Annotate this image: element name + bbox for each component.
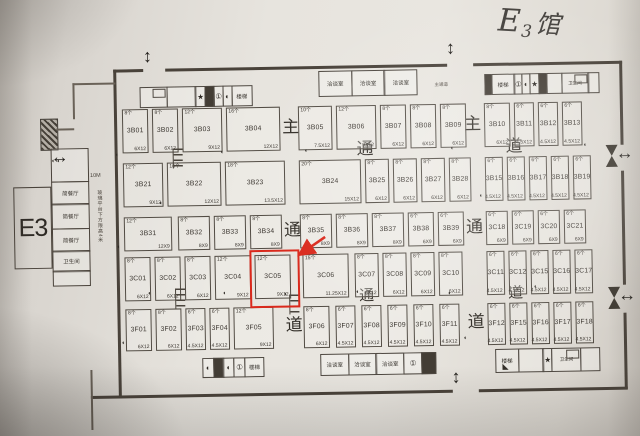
booth-unit-count: 6个	[512, 304, 520, 310]
booth-3b13: 6个 3B13 4.5X12	[562, 101, 583, 145]
booth-3c12: 6个 3C12 4.5X12	[508, 250, 527, 294]
booth-unit-count: 6个	[566, 211, 574, 217]
booth-id: 3C18	[488, 224, 505, 231]
booth-3b08: 8个 3B08 6X12	[410, 104, 437, 148]
room	[139, 87, 167, 108]
dark-room	[421, 352, 436, 374]
booth-unit-count: 6个	[564, 103, 572, 109]
meeting-room: 洽谈室	[320, 354, 349, 377]
handwritten-char: E	[497, 2, 521, 39]
floor-plan: ◐ ◐简餐厅简餐厅简餐厅卫生间 E3 10M 玻璃平台下方限高4米 ↕ ↕ ↔ …	[0, 0, 640, 436]
booth-unit-count: 8个	[306, 307, 314, 313]
booth-id: 3B24	[322, 178, 339, 185]
booth-3b24: 20个 3B24 15X12	[299, 159, 362, 204]
booth-id: 3B09	[445, 122, 462, 129]
pillar-icon: ◐	[451, 146, 455, 152]
booth-3b02: 8个 3B02 6X12	[152, 108, 179, 152]
booth-size: 4.5X12	[576, 336, 592, 342]
pillar-icon: ◐	[448, 291, 452, 297]
booth-3f08: 6个 3F08 4.5X12	[361, 305, 382, 347]
booth-3b31: 12个 3B31 12X9	[124, 217, 173, 252]
booth-size: 12X12	[264, 144, 279, 150]
booth-size: 4.5X12	[554, 337, 570, 343]
booth-unit-count: 6个	[556, 303, 564, 309]
booth-unit-count: 15个	[305, 255, 316, 261]
booth-3c11: 6个 3C11 4.5X12	[486, 251, 505, 295]
right-wall-segment	[621, 171, 625, 285]
booth-unit-count: 8个	[357, 254, 365, 260]
booth-id: 3F08	[363, 322, 379, 329]
booth-3c10: 8个 3C10 6X12	[438, 252, 463, 296]
booth-unit-count: 8个	[124, 110, 132, 116]
booth-id: 3B19	[574, 173, 591, 180]
inner-room	[566, 349, 579, 358]
booth-3b05: 10个 3B05 7.5X12	[298, 106, 333, 151]
booth-3f17: 6个 3F17 4.5X12	[553, 302, 572, 344]
booth-size: 8X9	[235, 242, 244, 248]
booth-unit-count: 8个	[157, 258, 165, 264]
annex-cell	[53, 270, 91, 287]
outer-wall-line	[72, 83, 115, 85]
booth-3f10: 6个 3F10 4.5X12	[413, 304, 434, 346]
outer-wall-line	[72, 83, 74, 119]
pillar-icon: ◐	[221, 150, 225, 156]
booth-size: 12X9	[158, 244, 170, 250]
booth-size: 4.5X12	[390, 340, 406, 346]
booth-3b06: 12个 3B06 9X12	[336, 105, 377, 150]
booth-id: 3B02	[157, 127, 174, 134]
stairs-room: 楼梯	[231, 85, 252, 106]
bottom-left-service-block: ◐◐①楼梯	[203, 357, 264, 378]
booth-unit-count: 8个	[128, 310, 136, 316]
booth-size: 13.5X12	[264, 198, 283, 204]
booth-3c04: 12个 3C04 9X12	[214, 255, 251, 300]
aisle-char: 主	[464, 116, 481, 133]
booth-unit-count: 8个	[127, 258, 135, 264]
booth-3b18: 6个 3B18 4.5X12	[551, 156, 570, 200]
booth-id: 3B36	[344, 226, 361, 233]
booth-unit-count: 8个	[338, 215, 346, 221]
floor-plan-photo: ◐ ◐简餐厅简餐厅简餐厅卫生间 E3 10M 玻璃平台下方限高4米 ↕ ↕ ↔ …	[0, 0, 640, 436]
pillar-icon: ◐	[356, 289, 360, 295]
booth-unit-count: 6个	[490, 304, 498, 310]
pillar-icon: ◐	[223, 291, 227, 297]
door-arrow-horizontal-icon: ↔	[616, 144, 634, 162]
booth-size: 4.5X12	[553, 287, 569, 293]
bottom-meeting-rooms: 洽谈室洽谈室洽谈室①	[321, 352, 436, 376]
booth-id: 3C09	[414, 270, 431, 277]
booth-id: 3C03	[189, 274, 206, 281]
booth-id: 3C11	[487, 269, 504, 276]
connector-line	[56, 128, 74, 130]
booth-size: 6X9	[523, 237, 532, 243]
height-limit-note: 玻璃平台下方限高4米	[96, 190, 104, 250]
booth-unit-count: 12个	[236, 308, 247, 314]
booth-id: 3B08	[415, 122, 432, 129]
booth-size: 8X9	[321, 241, 330, 247]
aisle-char: 通	[466, 219, 483, 236]
highlight-box-3c05	[249, 249, 300, 308]
booth-size: 9X12	[260, 342, 272, 348]
utility-mark-icon	[175, 288, 185, 308]
top-left-service-block: ★①◐楼梯	[140, 85, 252, 108]
booth-id: 3C21	[566, 223, 583, 230]
booth-id: 3B32	[186, 229, 203, 236]
booth-unit-count: 8个	[441, 253, 449, 259]
booth-unit-count: 6个	[489, 252, 497, 258]
booth-unit-count: 6个	[364, 306, 372, 312]
annex-room: 简餐厅	[52, 228, 90, 253]
meeting-room: 洽谈室	[384, 69, 418, 96]
booth-unit-count: 6个	[578, 302, 586, 308]
booth-id: 3F07	[337, 323, 353, 330]
booth-unit-count: 8个	[442, 105, 450, 111]
pillar-icon: ◐	[305, 148, 309, 154]
booth-id: 3C20	[540, 223, 557, 230]
booth-unit-count: 12个	[125, 164, 136, 170]
booth-unit-count: 8个	[395, 160, 403, 166]
booth-size: 6X12	[197, 293, 209, 299]
aisle-char: 通	[284, 222, 301, 239]
booth-id: 3B22	[186, 180, 203, 187]
outer-wall-line	[90, 370, 92, 398]
booth-id: 3B11	[516, 120, 532, 127]
top-wall-segment	[113, 69, 143, 72]
booth-id: 3F18	[576, 318, 592, 325]
booth-3b17: 6个 3B17 4.5X12	[529, 156, 548, 200]
booth-id: 3B27	[425, 176, 442, 183]
booth-id: 3C15	[531, 268, 548, 275]
booth-unit-count: 8个	[423, 159, 431, 165]
booth-id: 3C10	[442, 270, 459, 277]
booth-3c20: 6个 3C20 6X9	[538, 210, 561, 244]
booth-size: 4.5X12	[485, 194, 501, 200]
booth-3f12: 6个 3F12 4.5X12	[487, 303, 506, 345]
booth-size: 6X9	[453, 239, 462, 245]
booth-3b34: 8个 3B34 8X9	[250, 215, 283, 250]
top-right-service-block: 楼梯①◐★卫生间	[485, 72, 600, 95]
booth-unit-count: 6个	[442, 305, 450, 311]
room	[580, 347, 600, 371]
door-swing-icon	[606, 145, 618, 167]
booth-size: 6X9	[575, 236, 584, 242]
booth-id: 3C19	[514, 223, 531, 230]
booth-3f11: 6个 3F11 4.5X12	[439, 304, 460, 346]
booth-3c21: 6个 3C21 6X9	[564, 209, 587, 243]
booth-size: 6X9	[497, 238, 506, 244]
booth-id: 3F05	[245, 324, 261, 331]
booth-3b19: 6个 3B19 4.5X12	[573, 155, 592, 199]
booth-id: 3F12	[488, 320, 504, 327]
booth-unit-count: 6个	[540, 211, 548, 217]
booth-3c18: 6个 3C18 6X9	[486, 211, 509, 245]
booth-unit-count: 8个	[252, 216, 260, 222]
booth-id: 3F17	[554, 319, 570, 326]
booth-id: 3C04	[224, 274, 241, 281]
booth-unit-count: 8个	[187, 257, 195, 263]
booth-size: 6X12	[316, 341, 328, 347]
meeting-room: 洽谈室	[351, 70, 385, 97]
pillar-icon: ◐	[148, 291, 152, 297]
booth-id: 3B21	[135, 181, 152, 188]
hall-label: E3	[18, 213, 47, 242]
booth-size: 4.5X12	[487, 288, 503, 294]
booth-unit-count: 6个	[553, 157, 561, 163]
left-wall	[113, 70, 121, 398]
booth-id: 3B15	[486, 175, 503, 182]
booth-unit-count: 8个	[385, 254, 393, 260]
booth-unit-count: 6个	[516, 103, 524, 109]
booth-unit-count: 12个	[217, 257, 228, 263]
handwritten-hall-title: E3馆	[497, 2, 561, 41]
bottom-wall-segment	[479, 387, 628, 392]
booth-unit-count: 8个	[412, 105, 420, 111]
booth-3b33: 8个 3B33 8X9	[214, 215, 247, 250]
pillar-icon: ◐	[122, 340, 126, 346]
booth-unit-count: 6个	[540, 103, 548, 109]
booth-3f01: 8个 3F01 6X12	[125, 309, 152, 351]
booth-3f05: 12个 3F05 9X12	[233, 307, 274, 350]
booth-3f09: 6个 3F09 4.5X12	[387, 304, 408, 346]
booth-size: 8X9	[357, 240, 366, 246]
booth-id: 3B23	[247, 179, 264, 186]
booth-3f16: 6个 3F16 4.5X12	[531, 302, 550, 344]
booth-3f15: 6个 3F15 4.5X12	[509, 302, 528, 344]
corner-triangle-icon: ◣	[502, 363, 508, 371]
booth-size: 4.5X12	[212, 343, 228, 349]
booth-unit-count: 6个	[488, 212, 496, 218]
booth-3b07: 8个 3B07 6X12	[380, 104, 407, 148]
booth-id: 3B33	[222, 229, 239, 236]
booth-size: 4.5X12	[364, 340, 380, 346]
booth-unit-count: 8个	[486, 104, 494, 110]
booth-size: 6X12	[431, 195, 443, 201]
booth-unit-count: 8个	[374, 214, 382, 220]
booth-size: 9X12	[208, 145, 220, 151]
booth-unit-count: 16个	[228, 108, 239, 114]
door-arrow-vertical-icon: ↕	[451, 368, 460, 386]
booth-id: 3C02	[159, 275, 176, 282]
handwritten-char: 3	[521, 22, 533, 43]
booth-size: 6X12	[137, 294, 149, 300]
pillar-icon: ◐	[479, 193, 483, 199]
hall-label-box: E3	[13, 187, 52, 270]
booth-unit-count: 8个	[413, 253, 421, 259]
booth-3b25: 8个 3B25 6X12	[365, 159, 390, 203]
dimension-label: 10M	[90, 173, 101, 179]
room	[588, 72, 600, 93]
booth-unit-count: 6个	[188, 309, 196, 315]
booth-size: 15X12	[344, 196, 359, 202]
restroom: 卫生间	[551, 347, 581, 372]
utility-mark-icon	[173, 148, 183, 168]
booth-3f03: 6个 3F03 4.5X12	[185, 308, 206, 350]
pillar-icon: ◐	[159, 201, 163, 207]
booth-unit-count: 12个	[338, 106, 349, 112]
booth-id: 3B04	[245, 125, 262, 132]
booth-unit-count: 6个	[577, 250, 585, 256]
booth-size: 6X12	[457, 194, 469, 200]
booth-id: 3F06	[308, 323, 324, 330]
booth-3f04: 6个 3F04 4.5X12	[209, 308, 230, 350]
booth-id: 3B28	[452, 176, 469, 183]
booth-id: 3F16	[532, 319, 548, 326]
booth-size: 4.5X12	[188, 343, 204, 349]
door-swing-icon	[608, 287, 620, 309]
booth-size: 4.5X12	[488, 338, 504, 344]
booth-unit-count: 6个	[487, 158, 495, 164]
booth-id: 3F03	[187, 325, 203, 332]
booth-id: 3F09	[389, 322, 405, 329]
booth-unit-count: 6个	[511, 252, 519, 258]
annex-room: 简餐厅	[52, 203, 90, 230]
booth-id: 3B39	[443, 225, 460, 232]
booth-unit-count: 6个	[410, 213, 418, 219]
booth-unit-count: 6个	[514, 211, 522, 217]
booth-id: 3F01	[131, 326, 147, 333]
annex-building: ◐ ◐简餐厅简餐厅简餐厅卫生间	[51, 150, 91, 287]
booth-size: 4.5X12	[416, 339, 432, 345]
booth-size: 6X12	[375, 196, 387, 202]
booth-id: 3B37	[380, 226, 397, 233]
booth-3b27: 8个 3B27 6X12	[421, 158, 446, 202]
booth-id: 3C07	[358, 271, 375, 278]
inner-room	[152, 89, 165, 98]
booth-3c03: 8个 3C03 6X12	[184, 256, 211, 300]
top-wall-segment	[473, 61, 622, 66]
booth-unit-count: 8个	[451, 159, 459, 165]
booth-size: 4.5X12	[509, 287, 525, 293]
booth-id: 3B03	[194, 126, 211, 133]
booth-id: 3B05	[307, 124, 324, 131]
booth-unit-count: 18个	[227, 162, 238, 168]
booth-size: 6X12	[422, 141, 434, 147]
booth-3b23: 18个 3B23 13.5X12	[225, 161, 286, 206]
booth-3c08: 8个 3C08 6X12	[382, 252, 407, 296]
outer-wall-line	[91, 398, 93, 430]
booth-unit-count: 6个	[534, 303, 542, 309]
booth-unit-count: 6个	[390, 306, 398, 312]
booth-size: 4.5X12	[532, 337, 548, 343]
booth-size: 8X9	[271, 242, 280, 248]
booth-size: 4.5X12	[507, 193, 523, 199]
booth-id: 3B25	[369, 177, 386, 184]
booth-3b36: 8个 3B36 8X9	[336, 213, 369, 248]
aisle-char: 道	[467, 314, 484, 331]
booth-unit-count: 6个	[338, 307, 346, 313]
booth-3c19: 6个 3C19 6X9	[512, 210, 535, 244]
booth-size: 4.5X12	[573, 192, 589, 198]
booth-size: 6X12	[496, 140, 508, 146]
booth-unit-count: 12个	[126, 218, 137, 224]
booth-id: 3F10	[415, 321, 431, 328]
top-meeting-rooms: 洽谈室洽谈室洽谈室	[319, 69, 418, 97]
door-arrow-vertical-icon: ↕	[143, 47, 152, 65]
pillar-icon: ◐	[117, 244, 121, 250]
booth-id: 3C12	[509, 269, 526, 276]
booth-size: 4.5X12	[564, 138, 580, 144]
booth-id: 3B17	[530, 174, 547, 181]
booth-size: 4.5X12	[529, 193, 545, 199]
booth-3b03: 12个 3B03 9X12	[182, 108, 223, 153]
room	[518, 348, 544, 372]
booth-unit-count: 8个	[180, 217, 188, 223]
right-wall-segment	[619, 61, 623, 145]
meeting-room: 洽谈室	[376, 353, 405, 376]
aisle-char: 主	[282, 119, 299, 136]
booth-id: 3B01	[127, 127, 144, 134]
booth-3b39: 6个 3B39 6X9	[438, 211, 465, 245]
booth-size: 12X12	[204, 199, 219, 205]
booth-3b35: 8个 3B35 8X9	[300, 214, 333, 249]
booth-id: 3B10	[489, 121, 506, 128]
booth-id: 3B07	[385, 123, 402, 130]
stairs-room: 楼梯	[244, 357, 264, 377]
booth-unit-count: 12个	[184, 109, 195, 115]
booth-id: 3F11	[442, 321, 458, 328]
pillar-icon: ◐	[584, 142, 588, 148]
booth-size: 4.5X12	[510, 337, 526, 343]
booth-unit-count: 8个	[154, 110, 162, 116]
room	[166, 86, 196, 108]
booth-size: 7.5X12	[314, 143, 330, 149]
booth-id: 3C17	[575, 267, 592, 274]
booth-size: 4.5X12	[516, 139, 532, 145]
booth-id: 3B13	[564, 120, 581, 127]
booth-3c17: 6个 3C17 4.5X12	[574, 249, 593, 293]
pillar-icon: ◐	[464, 335, 468, 341]
booth-unit-count: 6个	[416, 305, 424, 311]
booth-size: 6X9	[423, 239, 432, 245]
booth-3c09: 8个 3C09 6X12	[410, 252, 435, 296]
door-arrow-horizontal-icon: ↔	[51, 147, 69, 165]
booth-unit-count: 20个	[301, 161, 312, 167]
booth-size: 9X12	[362, 142, 374, 148]
booth-size: 8X9	[199, 243, 208, 249]
booth-id: 3B16	[508, 175, 525, 182]
booth-unit-count: 8个	[302, 215, 310, 221]
booth-size: 6X12	[134, 146, 146, 152]
booth-size: 6X12	[138, 344, 150, 350]
booth-size: 4.5X12	[338, 340, 354, 346]
annex-room: 简餐厅	[51, 181, 89, 206]
booth-3b26: 8个 3B26 6X12	[393, 158, 418, 202]
booth-id: 3F15	[510, 320, 526, 327]
annex-room: 卫生间	[52, 250, 90, 273]
stairs-room: 楼梯	[491, 74, 515, 95]
booth-size: 6X12	[421, 289, 433, 295]
booth-3c16: 6个 3C16 4.5X12	[552, 250, 571, 294]
booth-id: 3C06	[317, 272, 334, 279]
booth-3b28: 8个 3B28 6X12	[449, 157, 472, 201]
pillar-icon: ◐	[534, 284, 538, 290]
booth-size: 8X9	[393, 240, 402, 246]
booth-3b21: 12个 3B21 9X12	[123, 163, 164, 208]
door-arrow-horizontal-icon: ↔	[618, 285, 636, 303]
booth-size: 6X9	[549, 237, 558, 243]
booth-unit-count: 10个	[300, 107, 311, 113]
bottom-right-service-block: 楼梯★卫生间	[496, 347, 600, 373]
booth-id: 3C16	[553, 268, 570, 275]
booth-size: 11.25X12	[326, 291, 347, 297]
booth-3b10: 8个 3B10 6X12	[484, 103, 511, 147]
restroom: 卫生间	[561, 72, 589, 93]
booth-3b37: 8个 3B37 8X9	[372, 213, 405, 248]
booth-unit-count: 8个	[382, 106, 390, 112]
aisle-char: 道	[286, 317, 303, 334]
booth-size: 6X12	[392, 142, 404, 148]
booth-id: 3C08	[386, 271, 403, 278]
